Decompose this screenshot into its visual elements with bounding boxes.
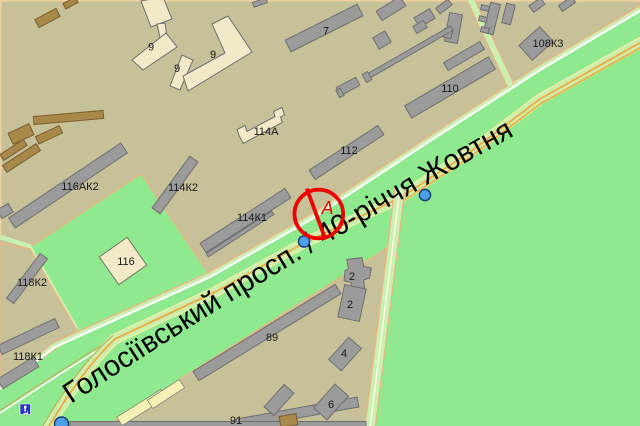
svg-text:2: 2 — [347, 299, 353, 311]
svg-text:4: 4 — [341, 348, 347, 360]
svg-text:114А: 114А — [254, 126, 280, 138]
svg-text:91: 91 — [230, 415, 242, 426]
svg-text:114К1: 114К1 — [237, 212, 267, 224]
svg-text:9: 9 — [174, 63, 180, 75]
svg-text:9: 9 — [148, 42, 154, 54]
svg-text:118К1: 118К1 — [13, 351, 43, 363]
svg-text:116АК2: 116АК2 — [61, 181, 98, 193]
svg-text:114К2: 114К2 — [168, 182, 198, 194]
svg-text:89: 89 — [266, 332, 278, 344]
svg-text:112: 112 — [340, 145, 358, 157]
svg-text:110: 110 — [441, 83, 459, 95]
svg-text:116: 116 — [117, 256, 135, 268]
svg-text:7: 7 — [323, 26, 329, 38]
svg-text:2: 2 — [349, 271, 355, 283]
svg-text:9: 9 — [210, 49, 216, 61]
svg-text:108К3: 108К3 — [533, 38, 564, 50]
svg-text:118К2: 118К2 — [17, 277, 47, 289]
svg-text:A: A — [320, 198, 333, 218]
svg-text:6: 6 — [328, 399, 334, 411]
